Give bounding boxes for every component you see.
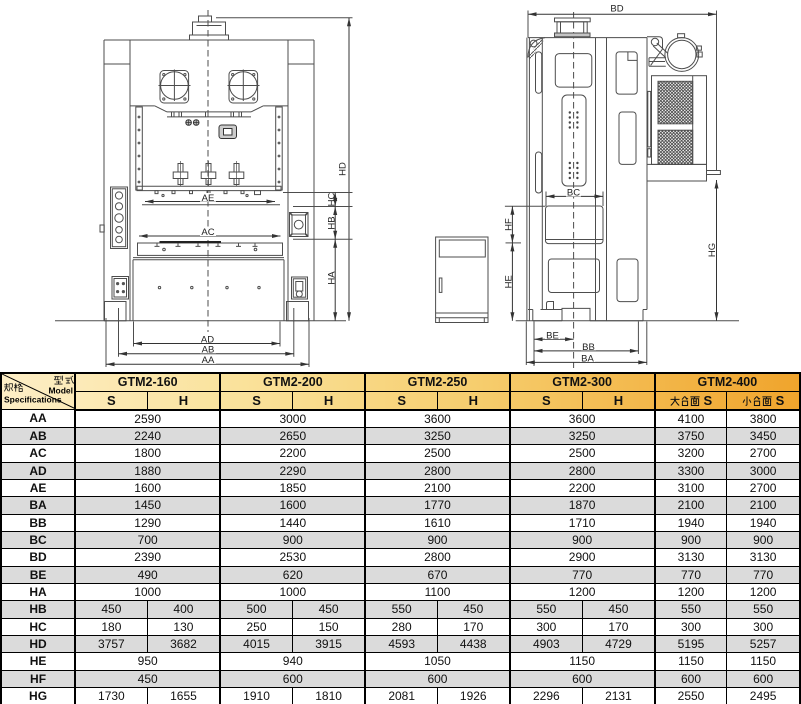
- svg-text:HA: HA: [327, 271, 338, 285]
- svg-text:Specifications: Specifications: [4, 395, 62, 405]
- svg-text:AE: AE: [202, 193, 215, 204]
- svg-text:HG: HG: [707, 243, 718, 257]
- svg-text:HD: HD: [338, 162, 349, 176]
- svg-text:AA: AA: [202, 355, 215, 366]
- svg-text:BC: BC: [567, 188, 580, 199]
- svg-text:BD: BD: [610, 4, 623, 15]
- svg-text:AB: AB: [202, 345, 215, 356]
- svg-text:HE: HE: [504, 275, 515, 288]
- svg-text:AC: AC: [201, 227, 214, 238]
- svg-text:BE: BE: [546, 330, 559, 341]
- svg-text:HF: HF: [504, 218, 515, 231]
- svg-text:HB: HB: [327, 216, 338, 229]
- svg-text:BA: BA: [581, 353, 594, 364]
- svg-text:HC: HC: [327, 193, 338, 207]
- svg-text:BB: BB: [582, 342, 595, 353]
